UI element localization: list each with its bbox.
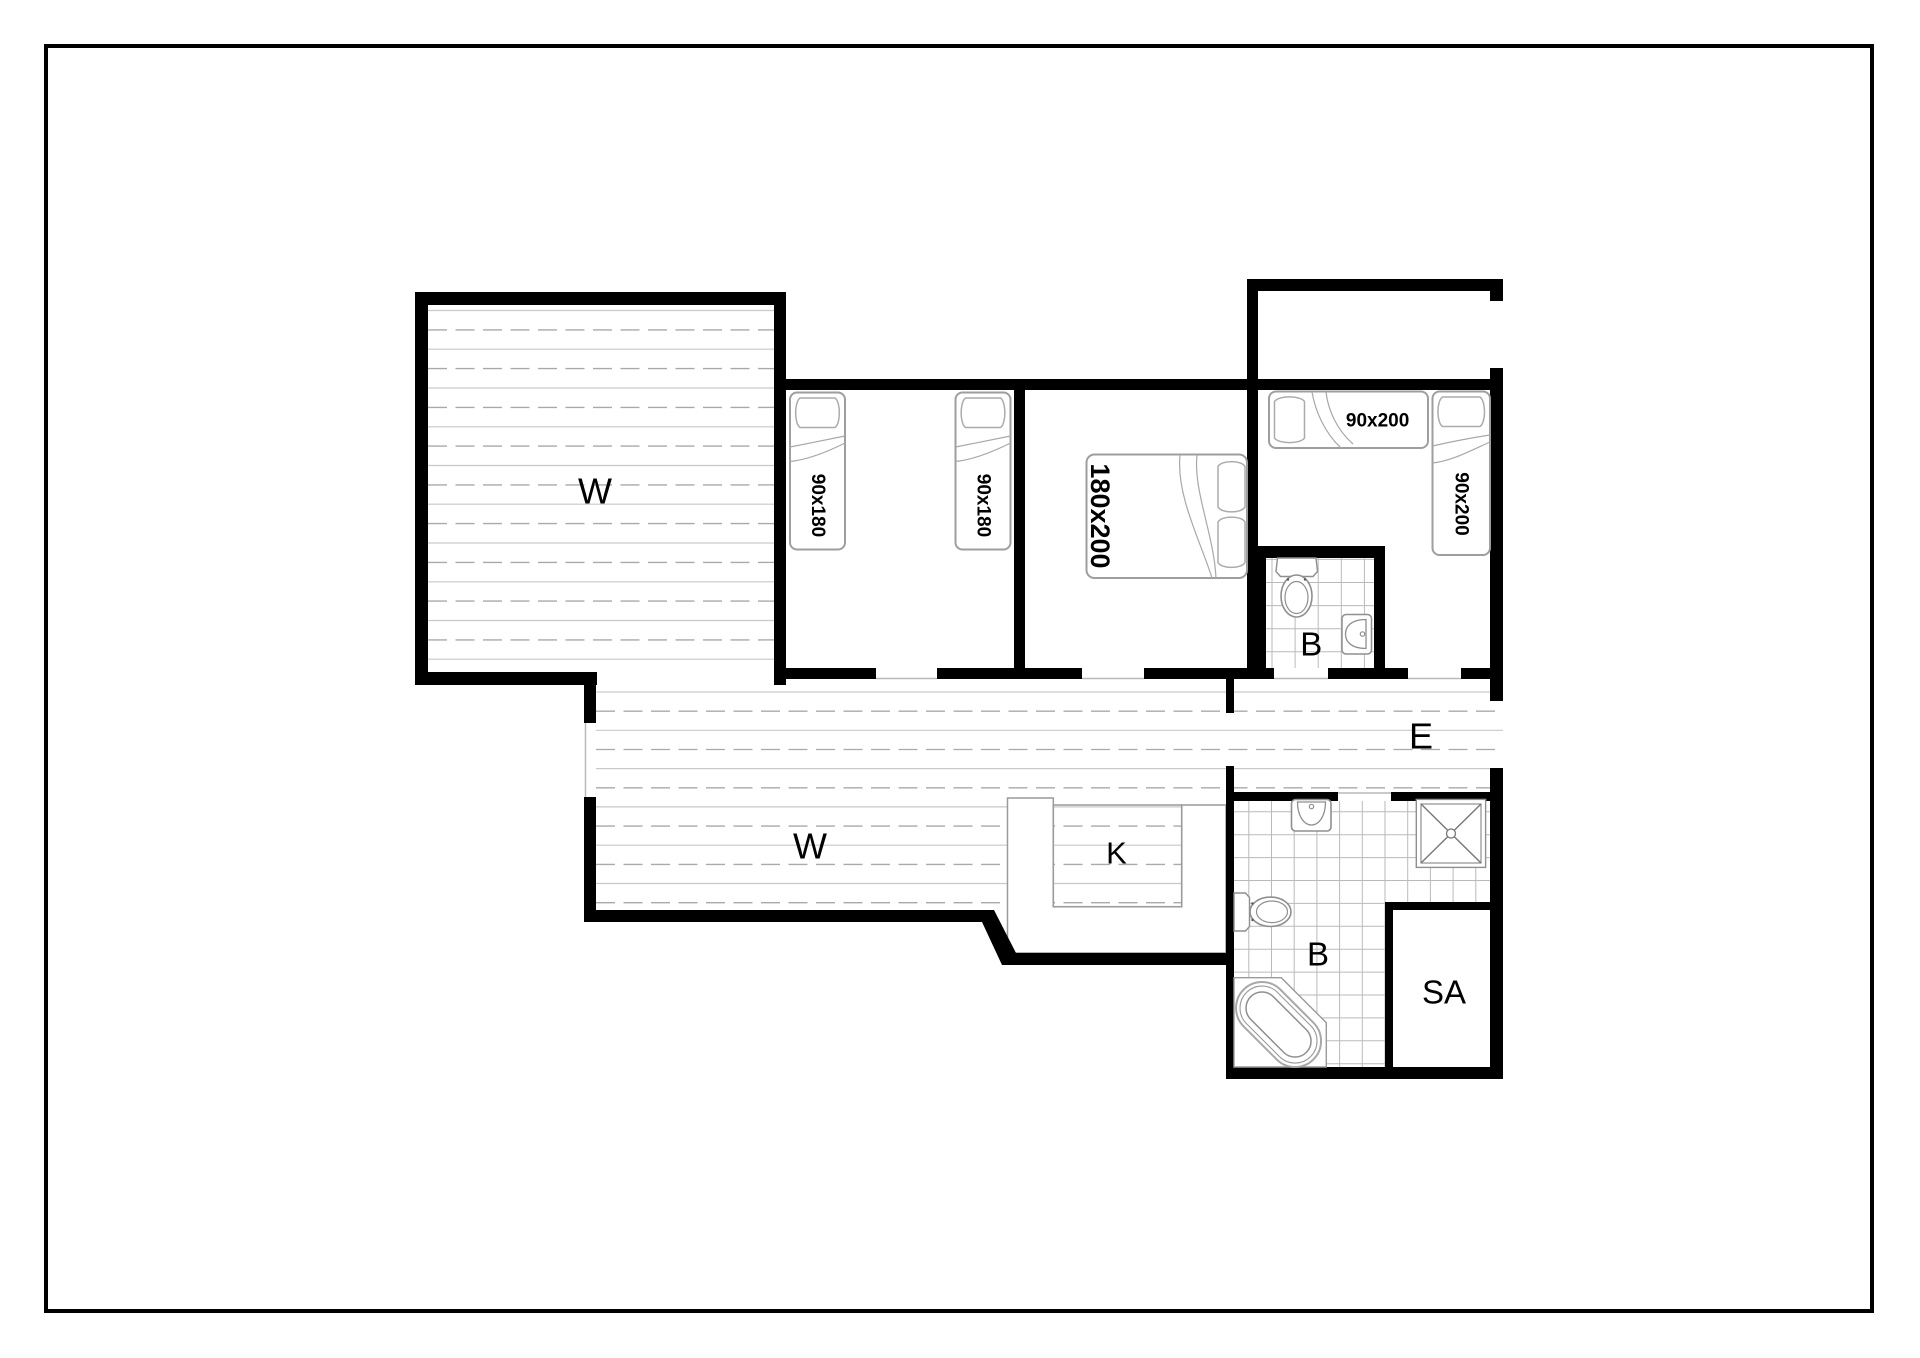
svg-text:90x180: 90x180 [807, 474, 828, 537]
svg-text:W: W [578, 471, 612, 512]
svg-text:90x180: 90x180 [973, 474, 994, 537]
svg-text:B: B [1300, 626, 1322, 663]
svg-text:E: E [1409, 716, 1433, 757]
svg-text:B: B [1307, 936, 1329, 973]
svg-text:90x200: 90x200 [1346, 411, 1409, 432]
svg-text:K: K [1106, 836, 1127, 871]
svg-text:SA: SA [1422, 974, 1466, 1011]
svg-text:90x200: 90x200 [1451, 472, 1472, 535]
svg-text:W: W [793, 826, 827, 867]
svg-text:180x200: 180x200 [1085, 463, 1115, 568]
